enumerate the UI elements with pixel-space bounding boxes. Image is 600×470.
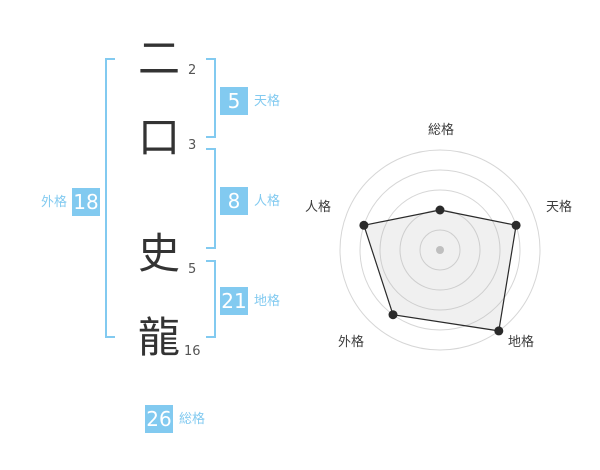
name-analysis-page: 二 口 史 龍 2 3 5 16 5 8 21 18 26 天格 人格 地格 外… xyxy=(0,0,600,470)
center-dot xyxy=(436,246,444,254)
data-point-dot xyxy=(494,326,503,335)
data-point-dot xyxy=(512,221,521,230)
axis-label: 地格 xyxy=(508,334,534,350)
axis-label: 人格 xyxy=(305,199,331,215)
radar-chart: 総格天格地格外格人格 xyxy=(0,0,600,470)
data-point-dot xyxy=(359,221,368,230)
axis-label: 天格 xyxy=(546,199,572,215)
axis-label: 総格 xyxy=(428,122,454,138)
radar-polygon xyxy=(364,210,516,331)
data-point-dot xyxy=(436,206,445,215)
data-point-dot xyxy=(389,310,398,319)
axis-label: 外格 xyxy=(338,334,364,350)
